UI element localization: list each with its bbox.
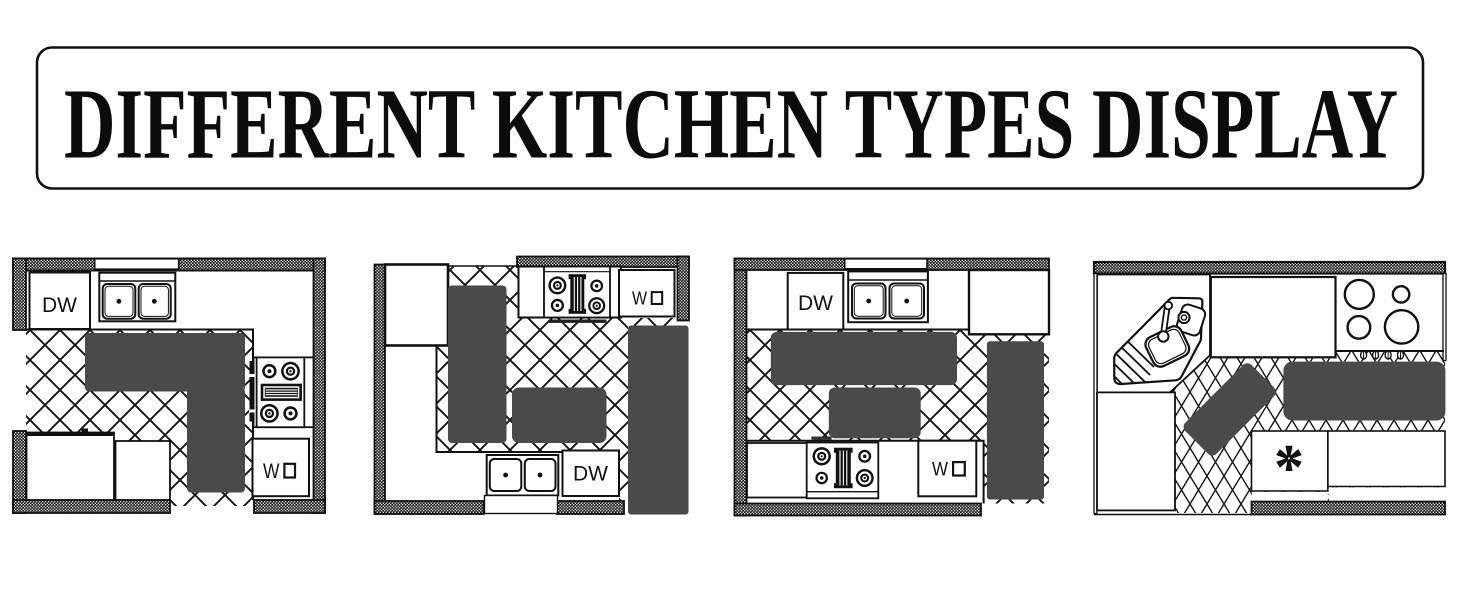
svg-text:W: W (632, 288, 647, 308)
svg-text:W: W (932, 459, 949, 481)
svg-text:DW: DW (573, 463, 608, 486)
svg-text:DW: DW (42, 294, 77, 317)
svg-text:DW: DW (798, 292, 833, 315)
svg-text:W: W (263, 460, 280, 483)
svg-text:DIFFERENT KITCHEN TYPES DISPLA: DIFFERENT KITCHEN TYPES DISPLAY (64, 68, 1398, 180)
